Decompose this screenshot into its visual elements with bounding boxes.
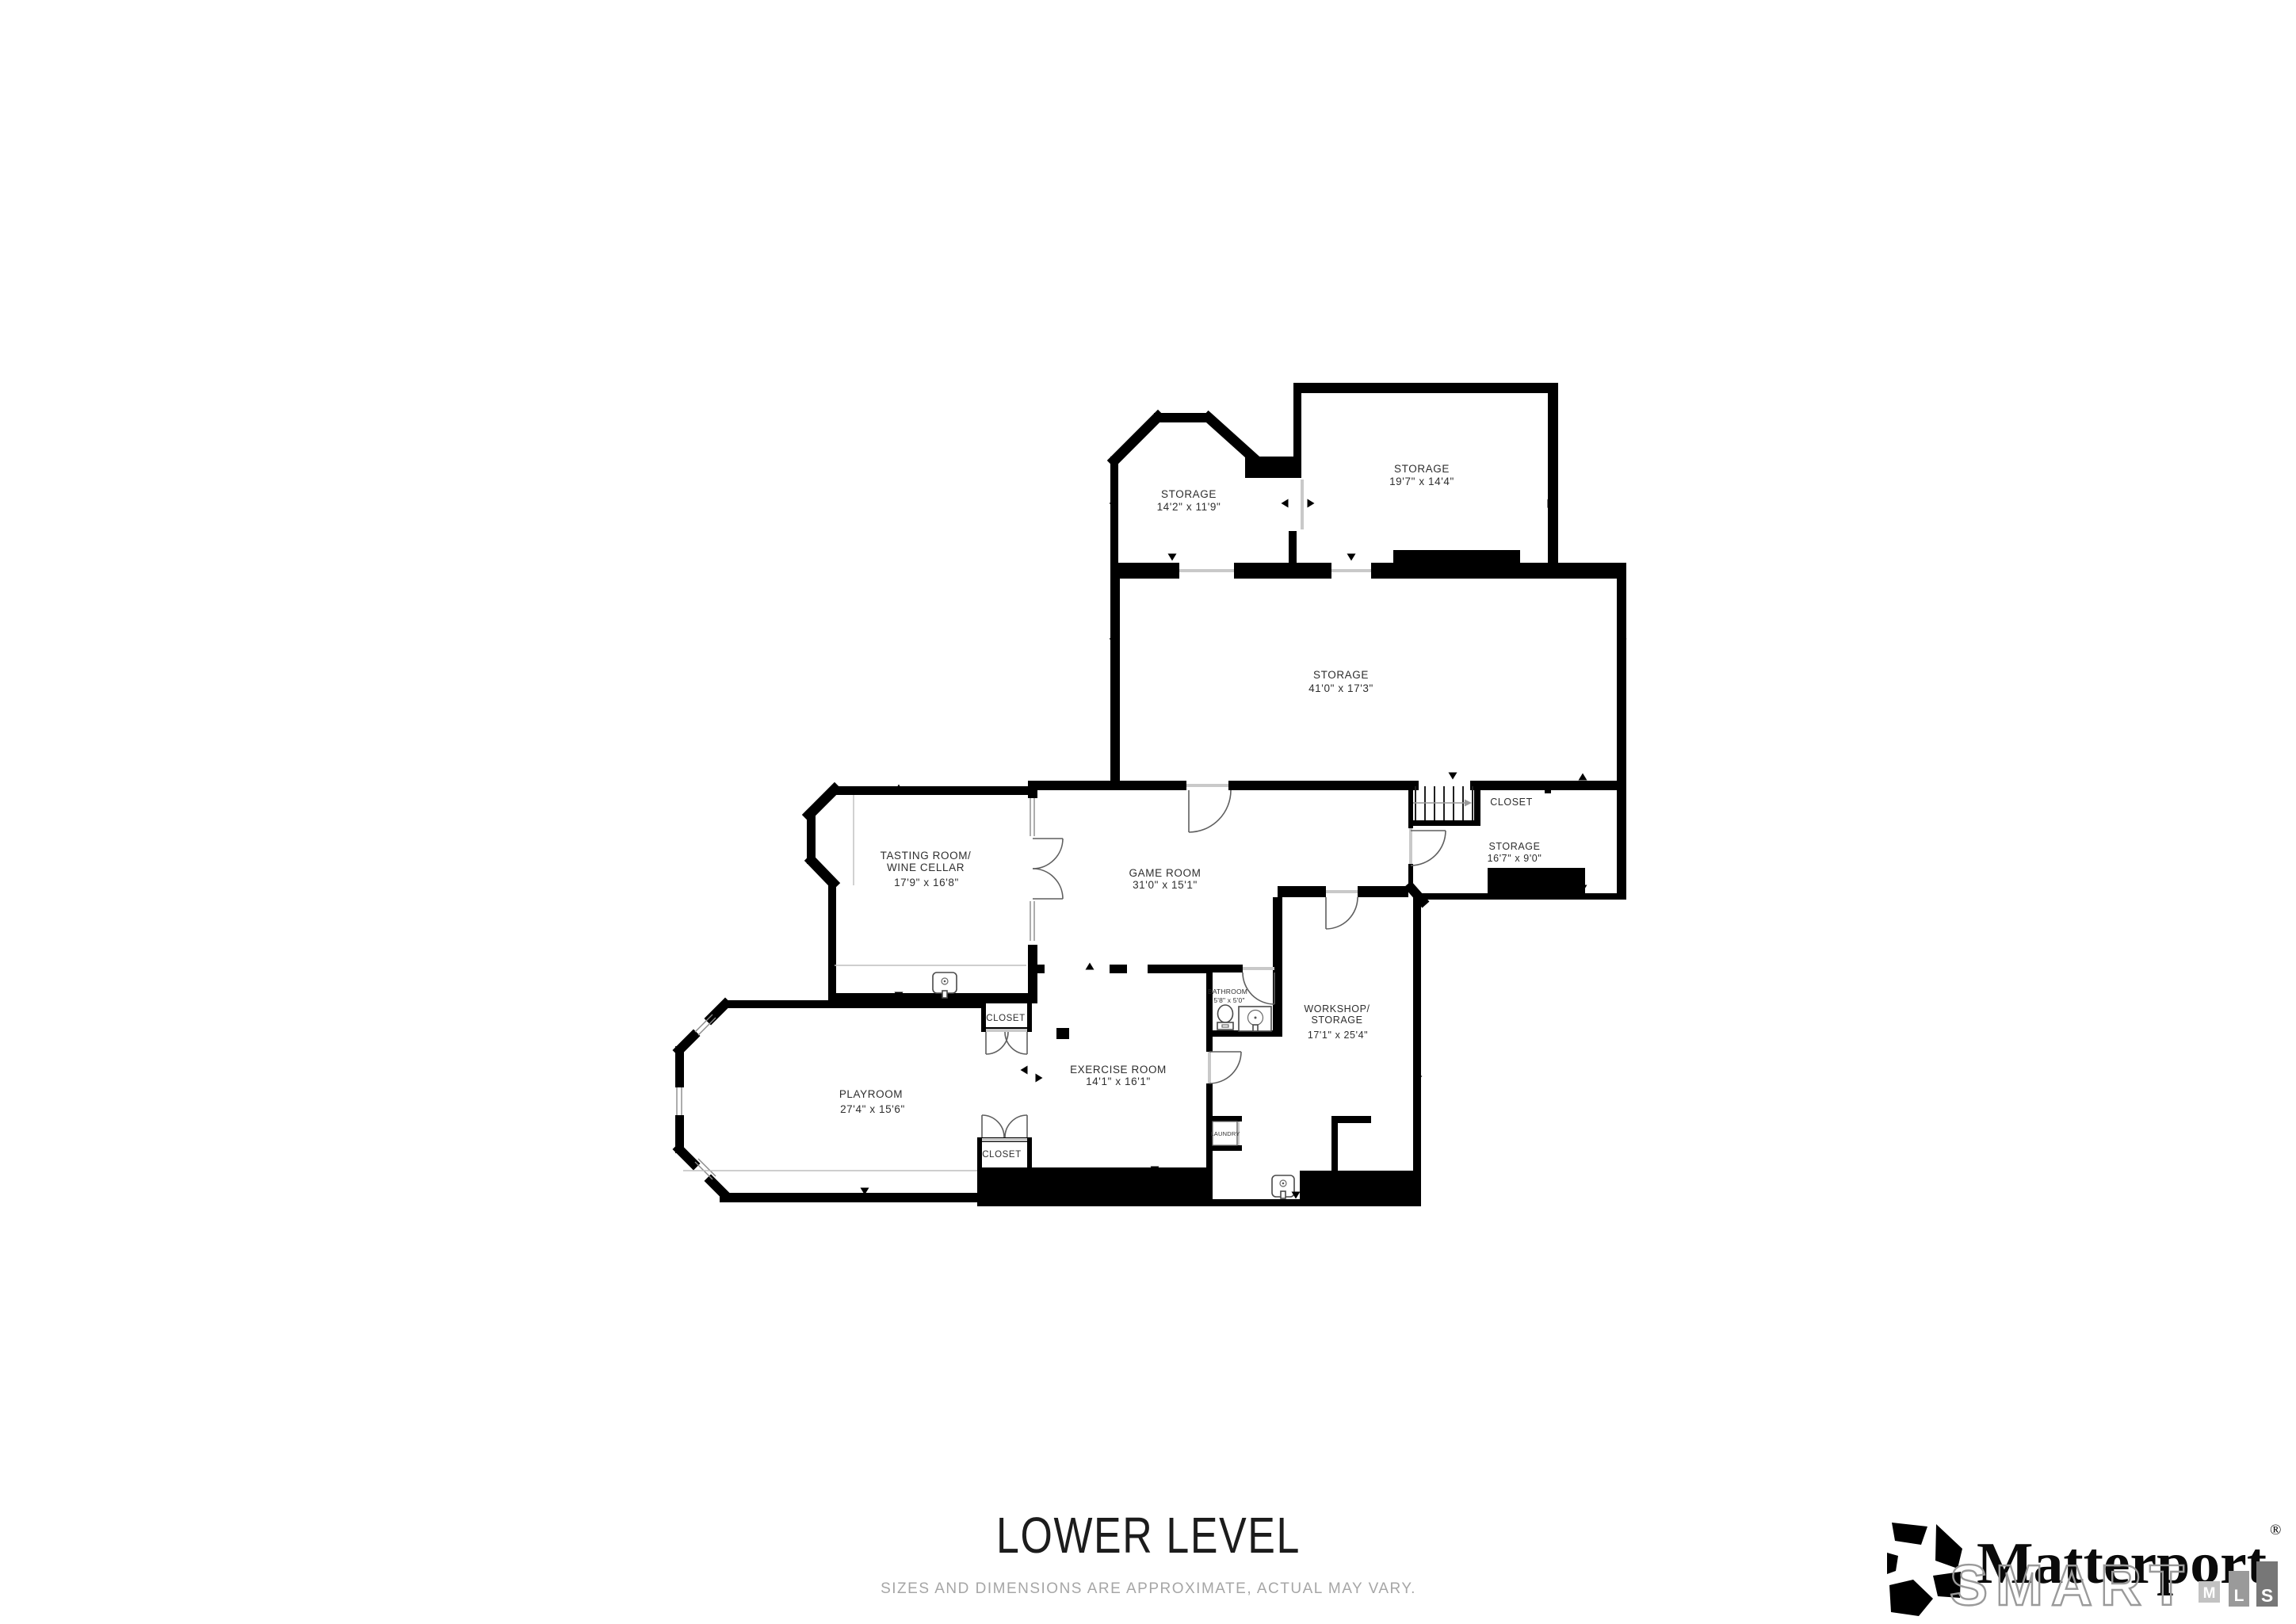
room-label-tasting-line2: WINE CELLAR [887,862,965,873]
room-label-exercise: EXERCISE ROOM [1070,1064,1167,1076]
stairs [1413,786,1473,820]
stairs-direction-arrow [1465,800,1472,807]
registered-mark: ® [2270,1522,2281,1538]
door-swing [1033,839,1063,869]
mls-letter-m: M [2203,1585,2216,1602]
page-title: LOWER LEVEL [996,1507,1301,1564]
room-dims-tasting: 17'9" x 16'8" [894,877,959,888]
room-label-workshop-line1: WORKSHOP/ [1304,1003,1370,1015]
door-thresholds [982,480,1411,1145]
utility-sink-icon [1272,1175,1294,1198]
room-dims-workshop: 17'1" x 25'4" [1308,1030,1368,1041]
room-label-closet-lower: CLOSET [982,1150,1022,1160]
room-label-bathroom: BATHROOM [1208,988,1247,995]
door-swing [1189,790,1231,832]
door-swing [982,1115,1004,1137]
door-swing [1326,897,1358,929]
room-label-closet-stairs: CLOSET [1490,797,1533,808]
room-dims-playroom: 27'4" x 15'6" [840,1103,905,1115]
room-dims-storage-main: 41'0" x 17'3" [1308,682,1373,694]
footer: LOWER LEVEL SIZES AND DIMENSIONS ARE APP… [881,1507,1416,1597]
walls [675,383,1626,1206]
room-dims-storage-top: 19'7" x 14'4" [1389,476,1454,487]
room-dims-bathroom: 5'8" x 5'0" [1213,996,1244,1004]
door-swing [1411,831,1446,865]
room-dims-storage-side: 16'7" x 9'0" [1488,853,1542,864]
mls-letter-s: S [2261,1585,2273,1606]
disclaimer-text: SIZES AND DIMENSIONS ARE APPROXIMATE, AC… [881,1580,1416,1597]
room-label-storage-main: STORAGE [1313,669,1369,681]
door-swings [982,790,1446,1137]
room-dims-game: 31'0" x 15'1" [1133,879,1198,891]
room-label-laundry: LAUNDRY [1210,1130,1240,1137]
room-label-playroom: PLAYROOM [839,1088,903,1100]
floor-plan-page: STORAGE 14'2" x 11'9" STORAGE 19'7" x 14… [0,0,2296,1624]
room-label-storage-top: STORAGE [1394,463,1450,475]
branding: Matterport ® SMART M L S [1887,1522,2281,1618]
mls-letter-l: L [2234,1587,2244,1605]
room-dims-exercise: 14'1" x 16'1" [1086,1076,1151,1087]
smart-mls-watermark: SMART [1950,1554,2192,1618]
door-swing [1005,1115,1027,1137]
toilet-icon [1217,1005,1233,1030]
room-dims-storage-angled: 14'2" x 11'9" [1157,501,1221,513]
room-label-game: GAME ROOM [1129,867,1201,879]
room-label-tasting-line1: TASTING ROOM/ [881,850,972,862]
bathroom-vanity-icon [1239,1007,1271,1031]
room-label-closet-upper: CLOSET [986,1014,1026,1023]
room-label-storage-angled: STORAGE [1161,488,1217,500]
room-label-storage-side: STORAGE [1488,841,1540,852]
room-label-workshop-line2: STORAGE [1311,1015,1362,1026]
windows [677,798,1034,1179]
door-swing [1033,869,1063,899]
floor-plan-canvas: STORAGE 14'2" x 11'9" STORAGE 19'7" x 14… [0,0,2296,1624]
door-swing [1209,1052,1241,1083]
